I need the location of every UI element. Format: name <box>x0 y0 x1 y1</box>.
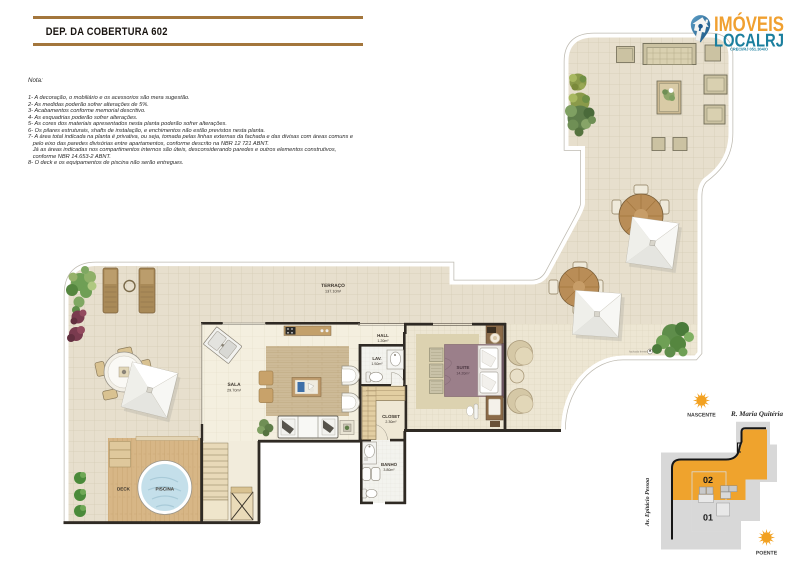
svg-text:TERRAÇO: TERRAÇO <box>321 283 345 289</box>
svg-text:02: 02 <box>703 475 713 485</box>
svg-text:R. Maria Quitéria: R. Maria Quitéria <box>730 410 783 418</box>
svg-text:2.30m²: 2.30m² <box>385 420 397 424</box>
svg-text:BANHO: BANHO <box>381 462 398 467</box>
svg-text:CLOSET: CLOSET <box>382 414 400 419</box>
svg-text:Av. Epitácio Pessoa: Av. Epitácio Pessoa <box>644 478 651 527</box>
svg-text:PISCINA: PISCINA <box>155 487 174 492</box>
svg-text:01: 01 <box>703 513 713 523</box>
svg-text:SUITE: SUITE <box>457 365 470 370</box>
svg-text:HALL: HALL <box>377 333 389 338</box>
svg-text:SALA: SALA <box>227 382 241 388</box>
svg-text:DECK: DECK <box>117 487 131 492</box>
svg-text:14.20m²: 14.20m² <box>456 372 470 376</box>
svg-text:POENTE: POENTE <box>756 551 778 557</box>
svg-text:3.80m²: 3.80m² <box>383 468 395 472</box>
svg-text:NASCENTE: NASCENTE <box>687 413 716 419</box>
svg-text:LAV.: LAV. <box>372 356 381 361</box>
svg-text:1.50m²: 1.50m² <box>371 362 383 366</box>
svg-text:1.20m²: 1.20m² <box>377 339 389 343</box>
svg-text:137.10m²: 137.10m² <box>325 290 342 294</box>
svg-text:fachada frente: fachada frente <box>629 350 647 354</box>
svg-text:29.70m²: 29.70m² <box>227 389 242 393</box>
svg-text:CRECI/RJ 051.304/O: CRECI/RJ 051.304/O <box>730 47 768 52</box>
